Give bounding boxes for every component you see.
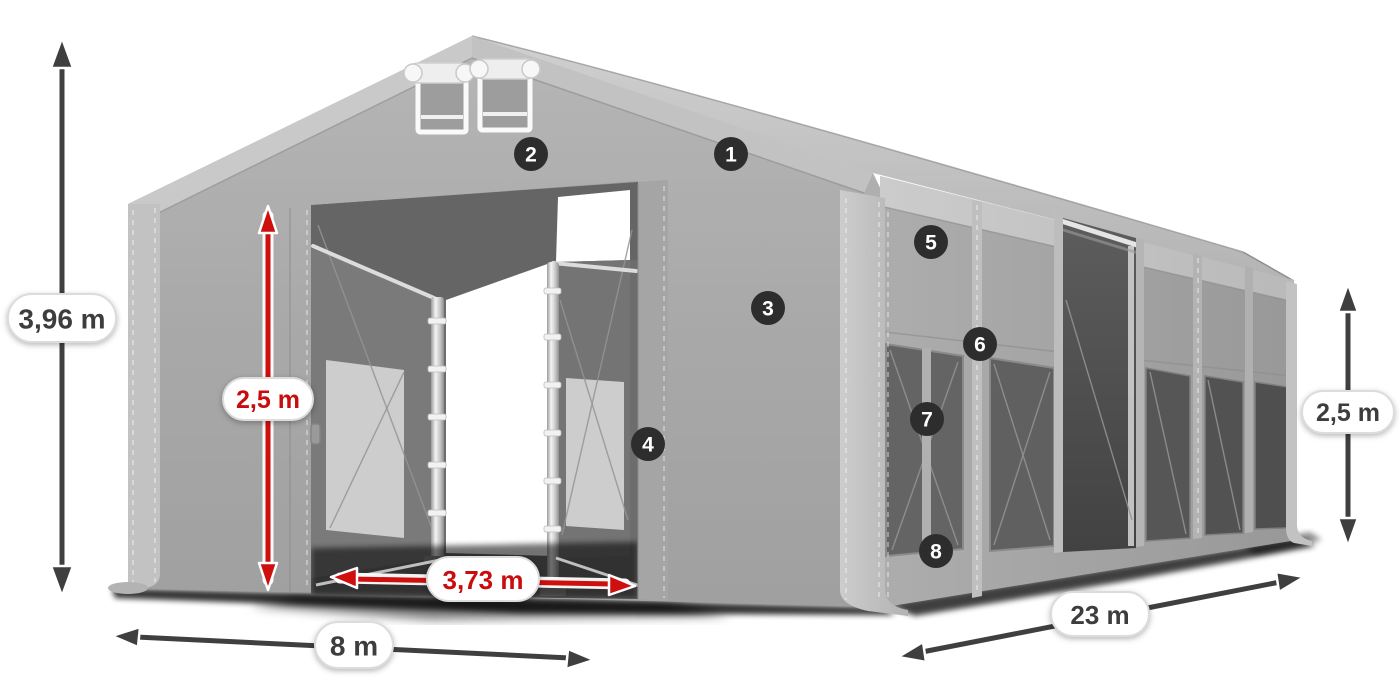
- dimension-label-length: 23 m: [1051, 592, 1149, 636]
- entrance-right-column: [638, 180, 668, 601]
- side-window-1: [886, 344, 963, 556]
- feature-marker-8: 8: [919, 534, 953, 568]
- side-window-4: [1205, 376, 1243, 535]
- feature-marker-1: 1: [714, 137, 748, 171]
- feature-marker-2: 2: [514, 137, 548, 171]
- svg-text:3,73 m: 3,73 m: [443, 565, 524, 595]
- svg-text:2: 2: [525, 144, 537, 167]
- dimension-label-total-height: 3,96 m: [8, 294, 116, 342]
- dimension-side-height: 2,5 m: [1302, 284, 1394, 546]
- dimension-label-entrance-width: 3,73 m: [427, 557, 539, 601]
- entrance-through-gap: [446, 262, 553, 556]
- svg-text:6: 6: [974, 334, 986, 357]
- side-window-3: [1146, 368, 1190, 541]
- svg-text:4: 4: [642, 434, 654, 457]
- svg-text:8 m: 8 m: [330, 631, 378, 662]
- feature-marker-4: 4: [631, 427, 665, 461]
- entrance-interior: [311, 182, 652, 599]
- dimension-total-height: 3,96 m: [8, 38, 116, 596]
- product-dimension-diagram: 3,96 m 2,5 m 3,73 m: [0, 0, 1400, 700]
- svg-text:23 m: 23 m: [1070, 600, 1129, 630]
- feature-marker-5: 5: [914, 225, 948, 259]
- dimension-label-gable-width: 8 m: [315, 622, 393, 668]
- gable-vent-window-right: [470, 59, 540, 130]
- svg-text:8: 8: [930, 541, 942, 564]
- svg-text:3,96 m: 3,96 m: [18, 304, 105, 335]
- side-window-5: [1255, 382, 1288, 529]
- feature-marker-6: 6: [963, 327, 997, 361]
- tent-render: [108, 36, 1312, 616]
- side-window-2: [990, 358, 1054, 551]
- svg-text:2,5 m: 2,5 m: [1316, 399, 1380, 427]
- svg-text:5: 5: [925, 232, 937, 255]
- side-open-section: [1058, 218, 1140, 552]
- dimension-label-side-height: 2,5 m: [1302, 391, 1394, 433]
- svg-text:3: 3: [762, 298, 774, 321]
- feature-marker-3: 3: [751, 291, 785, 325]
- front-left-corner-strip: [108, 204, 160, 594]
- svg-text:1: 1: [725, 144, 737, 167]
- feature-marker-7: 7: [910, 402, 944, 436]
- svg-text:2,5 m: 2,5 m: [236, 386, 300, 414]
- dimension-gable-width: 8 m: [112, 622, 594, 669]
- dimension-label-entrance-height: 2,5 m: [223, 378, 313, 420]
- door-handle: [311, 424, 320, 444]
- entrance-right-door: [556, 230, 632, 558]
- svg-text:7: 7: [921, 409, 933, 432]
